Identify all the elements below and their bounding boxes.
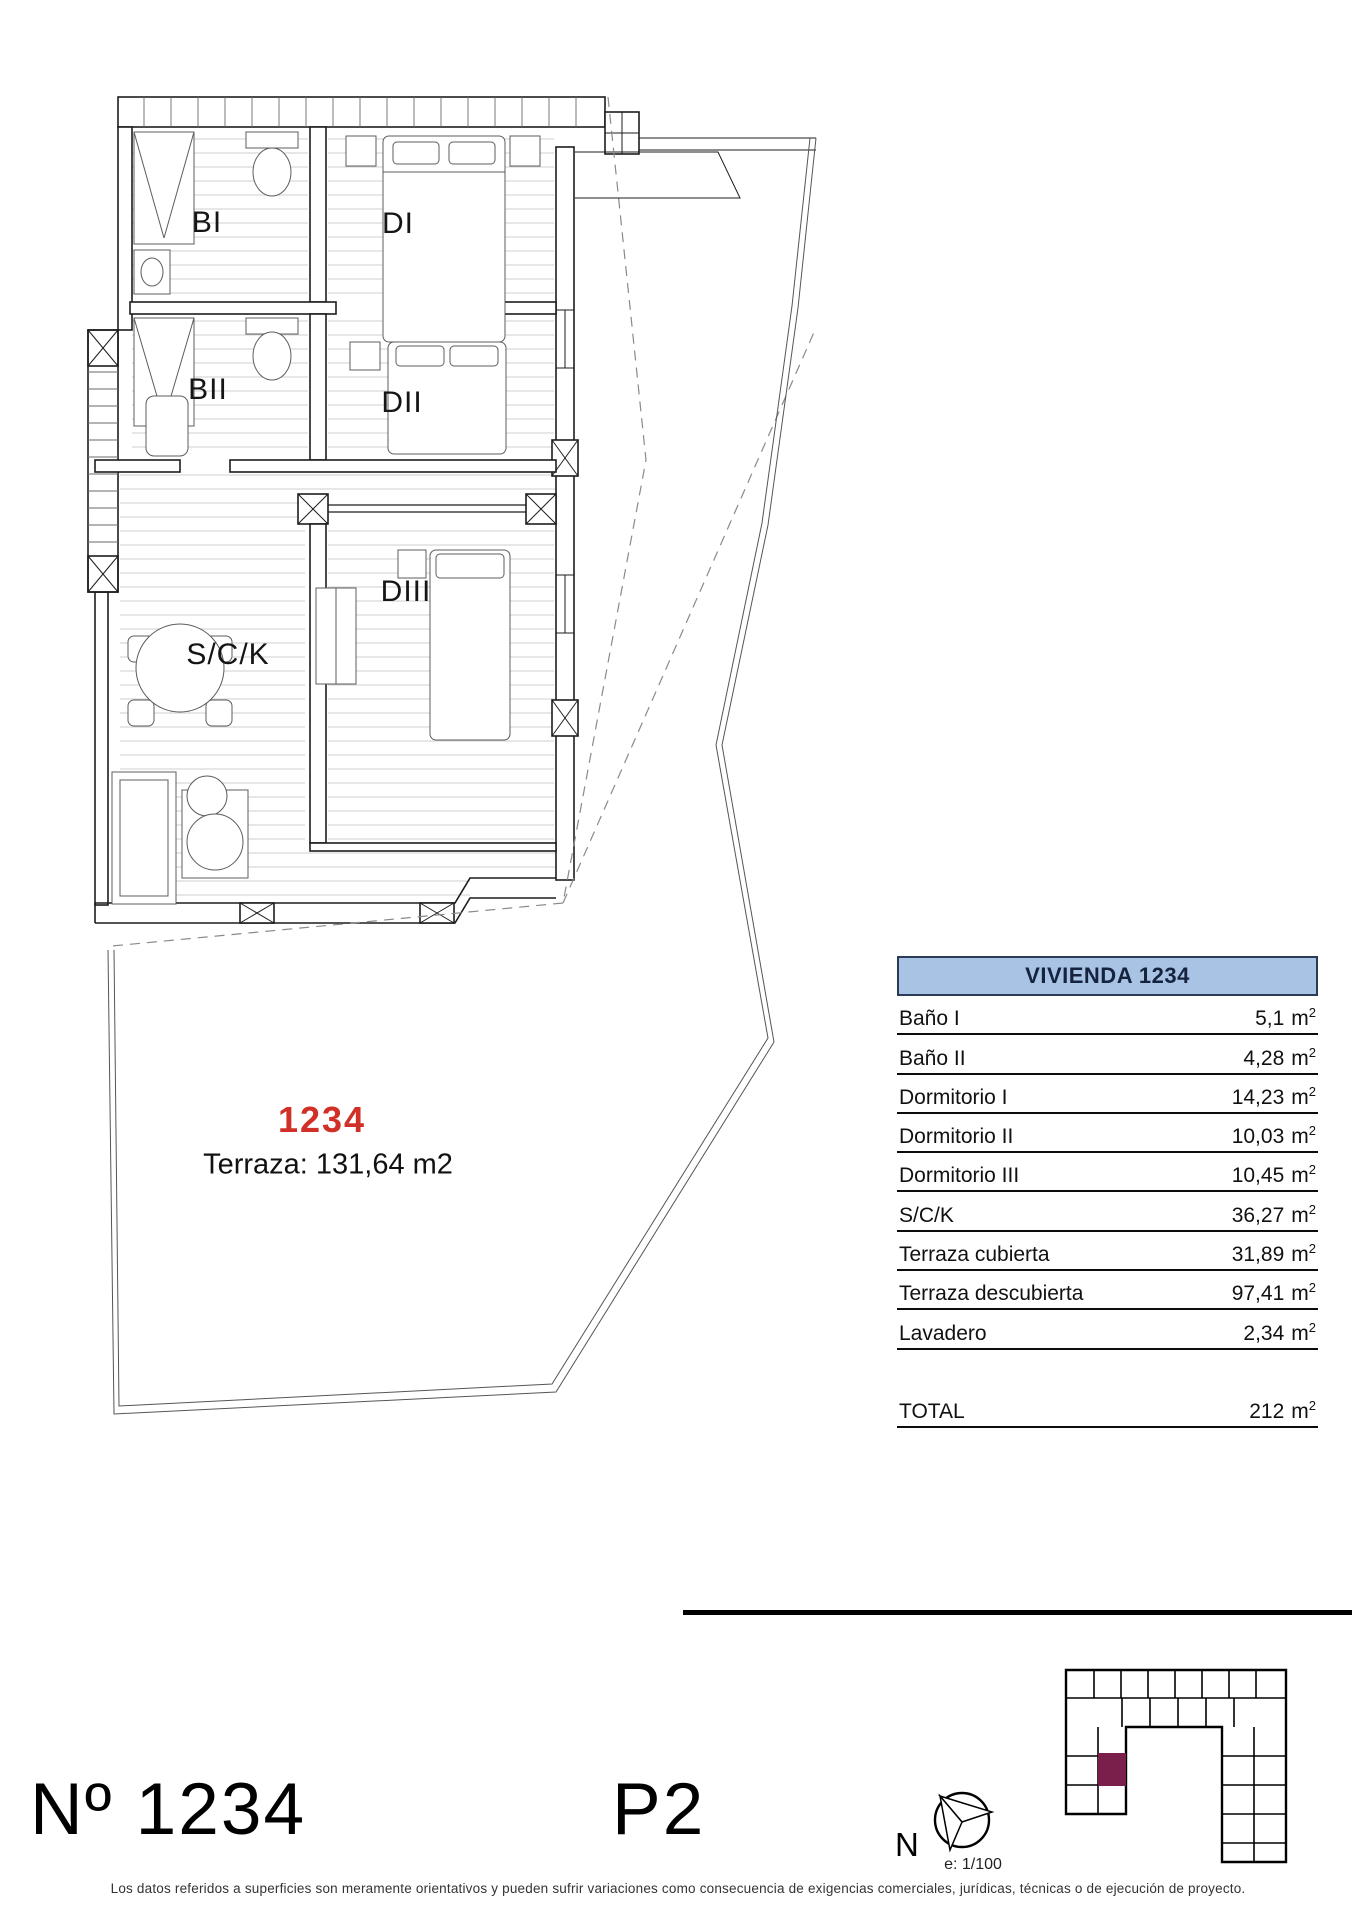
row-label: S/C/K <box>899 1204 954 1228</box>
total-label: TOTAL <box>899 1400 965 1424</box>
row-label: Lavadero <box>899 1322 987 1346</box>
row-label: Dormitorio I <box>899 1086 1008 1110</box>
unit-number-red: 1234 <box>278 1099 366 1141</box>
row-value: 14,23m2 <box>1232 1084 1316 1110</box>
table-header: VIVIENDA 1234 <box>897 956 1318 996</box>
table-row: Dormitorio III 10,45m2 <box>897 1153 1318 1192</box>
room-label-bath2: BII <box>188 373 228 407</box>
table-row: Terraza descubierta 97,41m2 <box>897 1271 1318 1310</box>
row-label: Dormitorio II <box>899 1125 1013 1149</box>
table-spacer-row <box>897 1350 1318 1389</box>
row-value: 10,45m2 <box>1232 1162 1316 1188</box>
floor-label: P2 <box>612 1768 705 1851</box>
row-value: 10,03m2 <box>1232 1123 1316 1149</box>
sheet-title: Nº 1234 <box>30 1768 306 1851</box>
divider-line <box>683 1610 1352 1615</box>
table-row: Terraza cubierta 31,89m2 <box>897 1232 1318 1271</box>
row-label: Terraza cubierta <box>899 1243 1050 1267</box>
row-value: 4,28m2 <box>1243 1045 1316 1071</box>
north-label: N <box>895 1826 919 1864</box>
table-row: Lavadero 2,34m2 <box>897 1310 1318 1349</box>
row-label: Terraza descubierta <box>899 1282 1083 1306</box>
table-row: Baño I 5,1m2 <box>897 996 1318 1035</box>
room-label-bed3: DIII <box>381 575 432 609</box>
site-key-plan <box>1066 1670 1286 1862</box>
compass-icon <box>935 1793 992 1850</box>
highlighted-unit <box>1098 1753 1126 1786</box>
row-value: 5,1m2 <box>1255 1005 1316 1031</box>
floor-plan-sheet: { "unit": { "number_red": "1234", "terra… <box>0 0 1356 1920</box>
row-value: 97,41m2 <box>1232 1280 1316 1306</box>
room-label-living-kitchen: S/C/K <box>186 638 269 672</box>
row-label: Baño I <box>899 1007 960 1031</box>
table-total-row: TOTAL 212m2 <box>897 1389 1318 1428</box>
table-row: Dormitorio II 10,03m2 <box>897 1114 1318 1153</box>
table-row: Baño II 4,28m2 <box>897 1035 1318 1074</box>
row-value: 2,34m2 <box>1243 1320 1316 1346</box>
table-row: Dormitorio I 14,23m2 <box>897 1075 1318 1114</box>
row-value: 31,89m2 <box>1232 1241 1316 1267</box>
table-row: S/C/K 36,27m2 <box>897 1192 1318 1231</box>
total-value: 212m2 <box>1249 1398 1316 1424</box>
footer-disclaimer: Los datos referidos a superficies son me… <box>0 1881 1356 1896</box>
scale-label: e: 1/100 <box>944 1856 1002 1874</box>
room-label-bath1: BI <box>192 206 222 240</box>
terrace-area-note: Terraza: 131,64 m2 <box>203 1149 453 1182</box>
room-label-bed1: DI <box>382 207 414 241</box>
room-label-bed2: DII <box>381 386 422 420</box>
row-label: Baño II <box>899 1047 966 1071</box>
row-value: 36,27m2 <box>1232 1202 1316 1228</box>
row-label: Dormitorio III <box>899 1164 1019 1188</box>
surface-area-table: VIVIENDA 1234 Baño I 5,1m2 Baño II 4,28m… <box>897 956 1318 1428</box>
